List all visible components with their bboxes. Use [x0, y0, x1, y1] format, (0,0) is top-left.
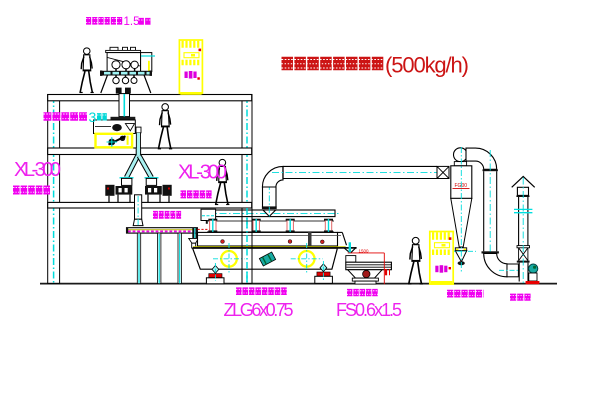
svg-text:1.5: 1.5 — [124, 16, 140, 28]
svg-text:FS0.6x1.5: FS0.6x1.5 — [336, 300, 402, 320]
svg-text:1500: 1500 — [359, 248, 370, 253]
svg-text:XL-300: XL-300 — [14, 159, 61, 181]
svg-text:(500kg/h): (500kg/h) — [385, 53, 469, 78]
svg-text:XL-300: XL-300 — [178, 162, 227, 184]
svg-text:ZLG6x0.75: ZLG6x0.75 — [224, 300, 294, 320]
svg-text:3: 3 — [89, 109, 97, 125]
